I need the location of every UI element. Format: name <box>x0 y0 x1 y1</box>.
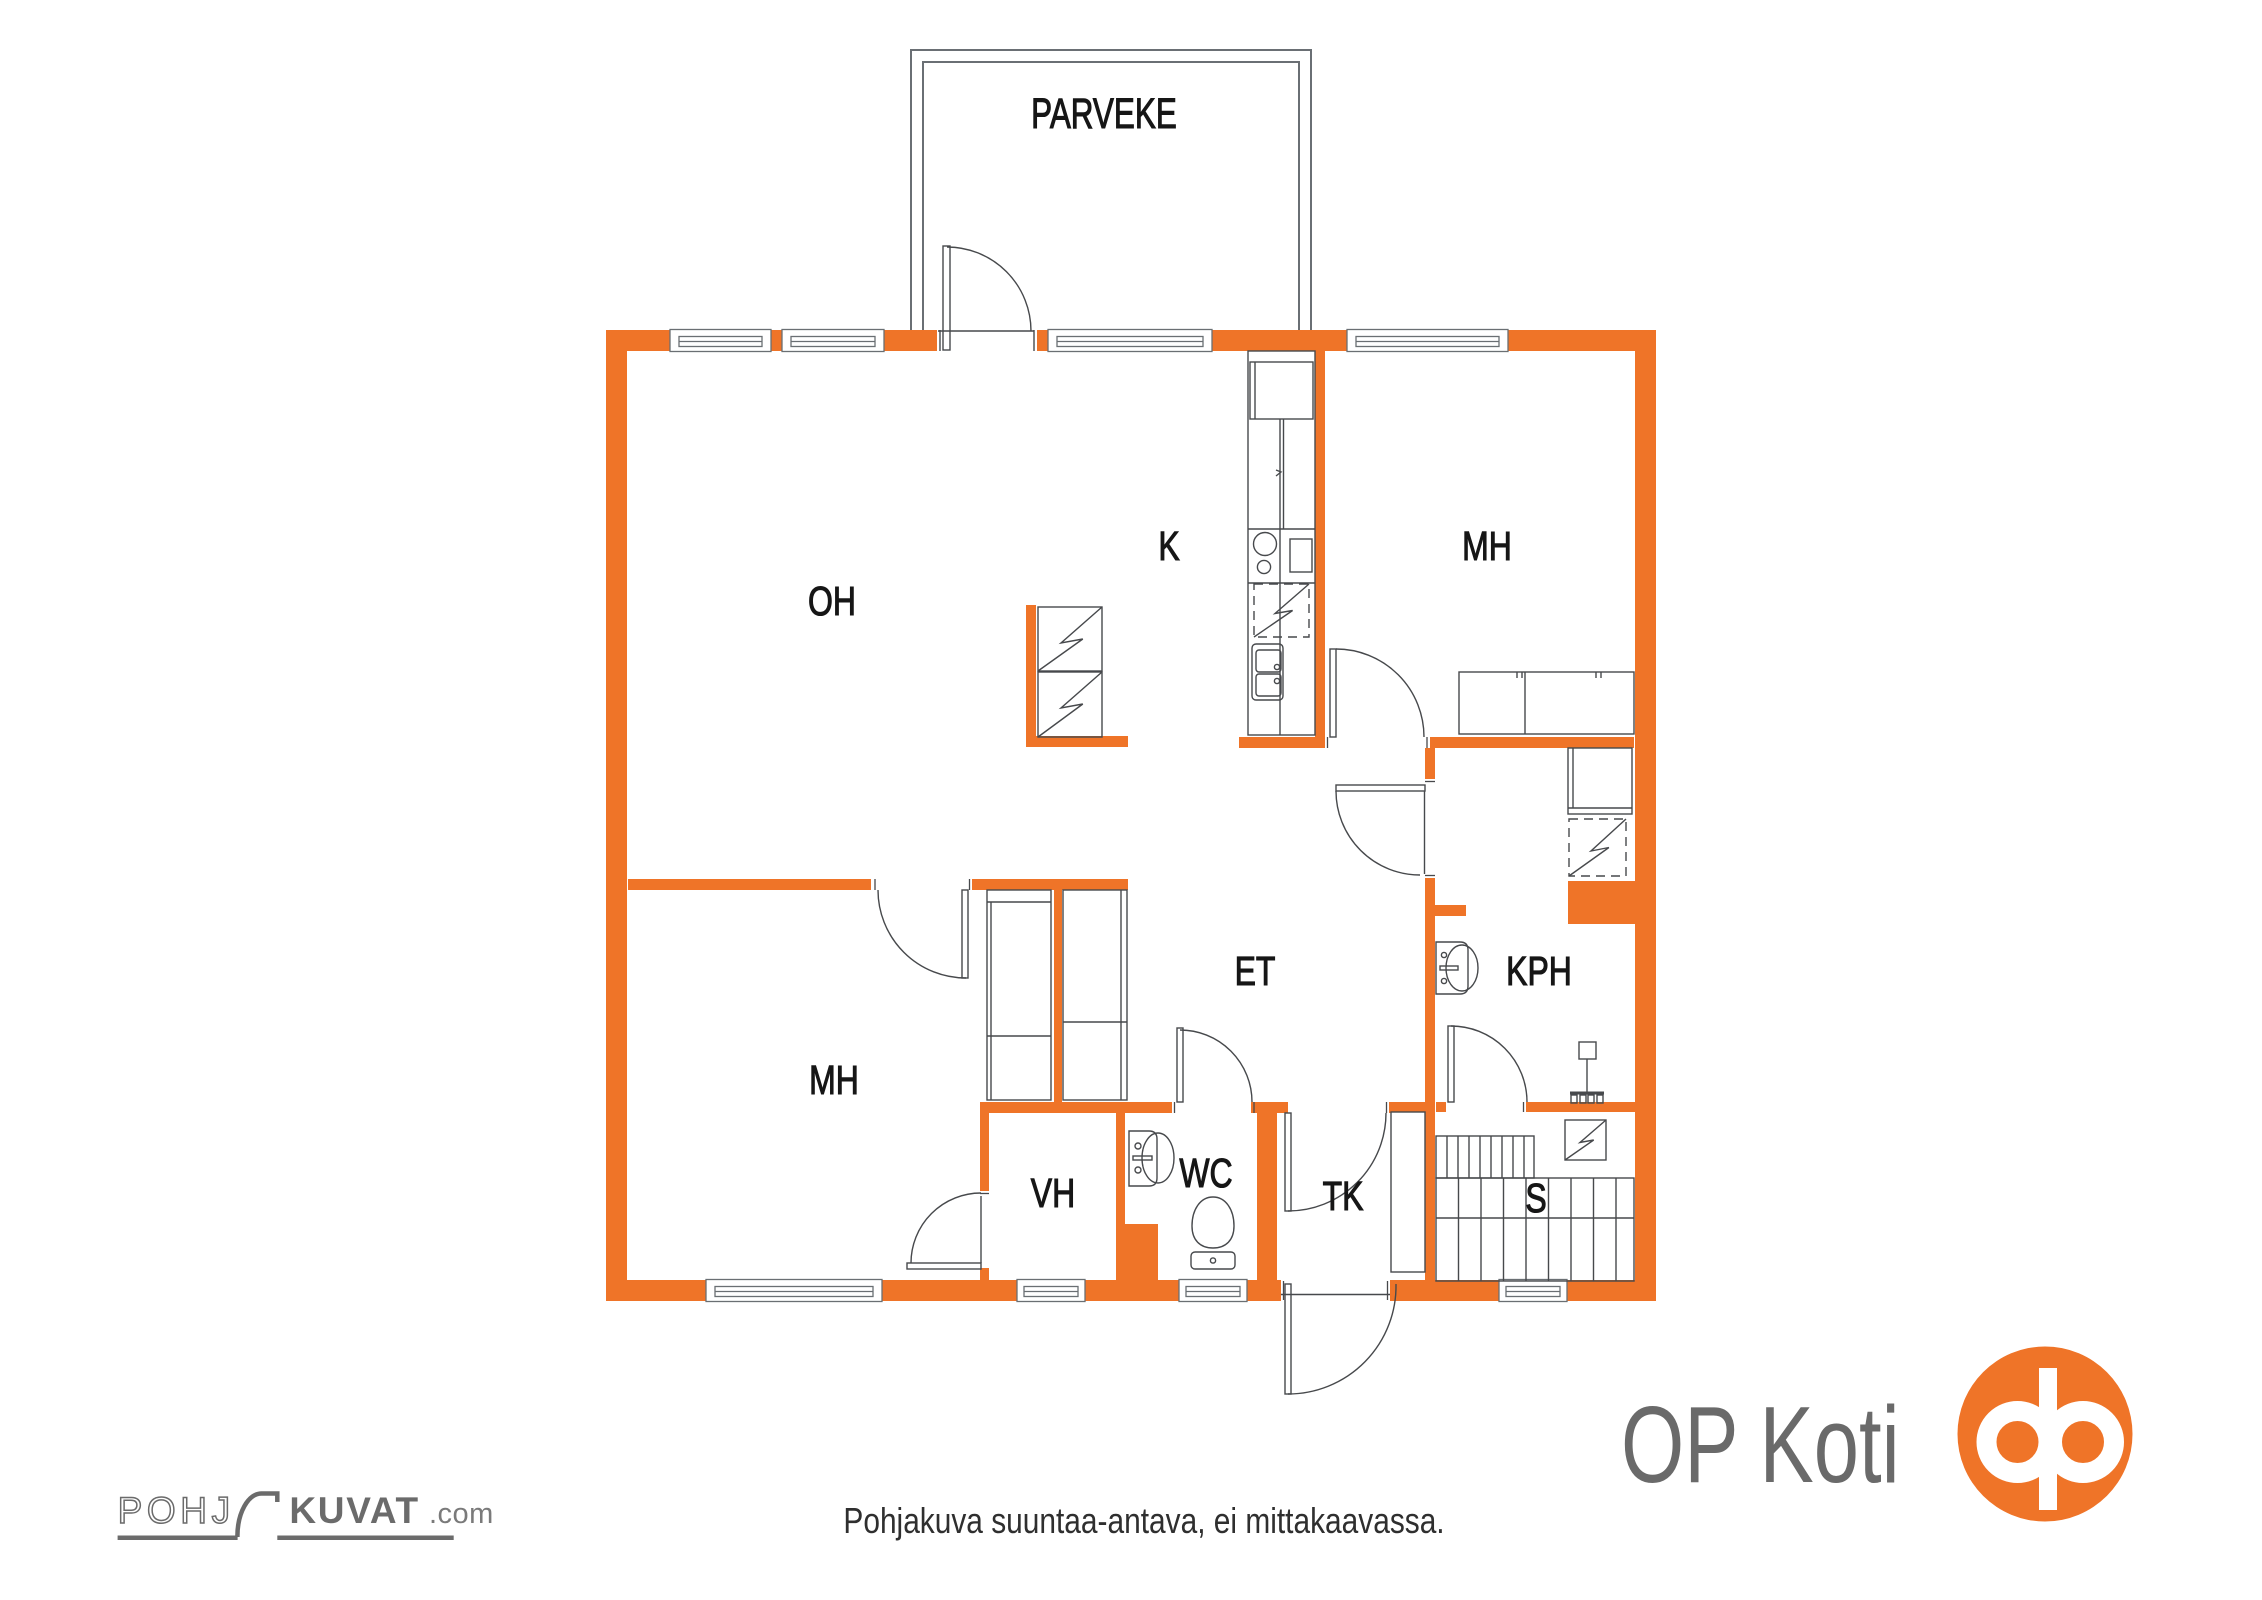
svg-text:.com: .com <box>429 1498 494 1530</box>
svg-text:MH: MH <box>809 1057 859 1103</box>
svg-text:OP Koti: OP Koti <box>1621 1385 1900 1506</box>
svg-text:KUVAT: KUVAT <box>289 1490 419 1531</box>
svg-text:S: S <box>1525 1175 1546 1221</box>
svg-text:Pohjakuva suuntaa-antava, ei m: Pohjakuva suuntaa-antava, ei mittakaavas… <box>843 1501 1444 1541</box>
svg-text:WC: WC <box>1179 1150 1232 1196</box>
svg-text:POHJ: POHJ <box>118 1490 235 1531</box>
svg-text:OH: OH <box>808 578 856 624</box>
svg-text:PARVEKE: PARVEKE <box>1031 89 1177 137</box>
svg-text:K: K <box>1158 523 1180 569</box>
svg-text:TK: TK <box>1323 1173 1364 1219</box>
svg-text:MH: MH <box>1462 523 1512 569</box>
svg-text:KPH: KPH <box>1506 948 1572 994</box>
svg-text:ET: ET <box>1235 948 1276 994</box>
svg-text:VH: VH <box>1031 1170 1075 1216</box>
